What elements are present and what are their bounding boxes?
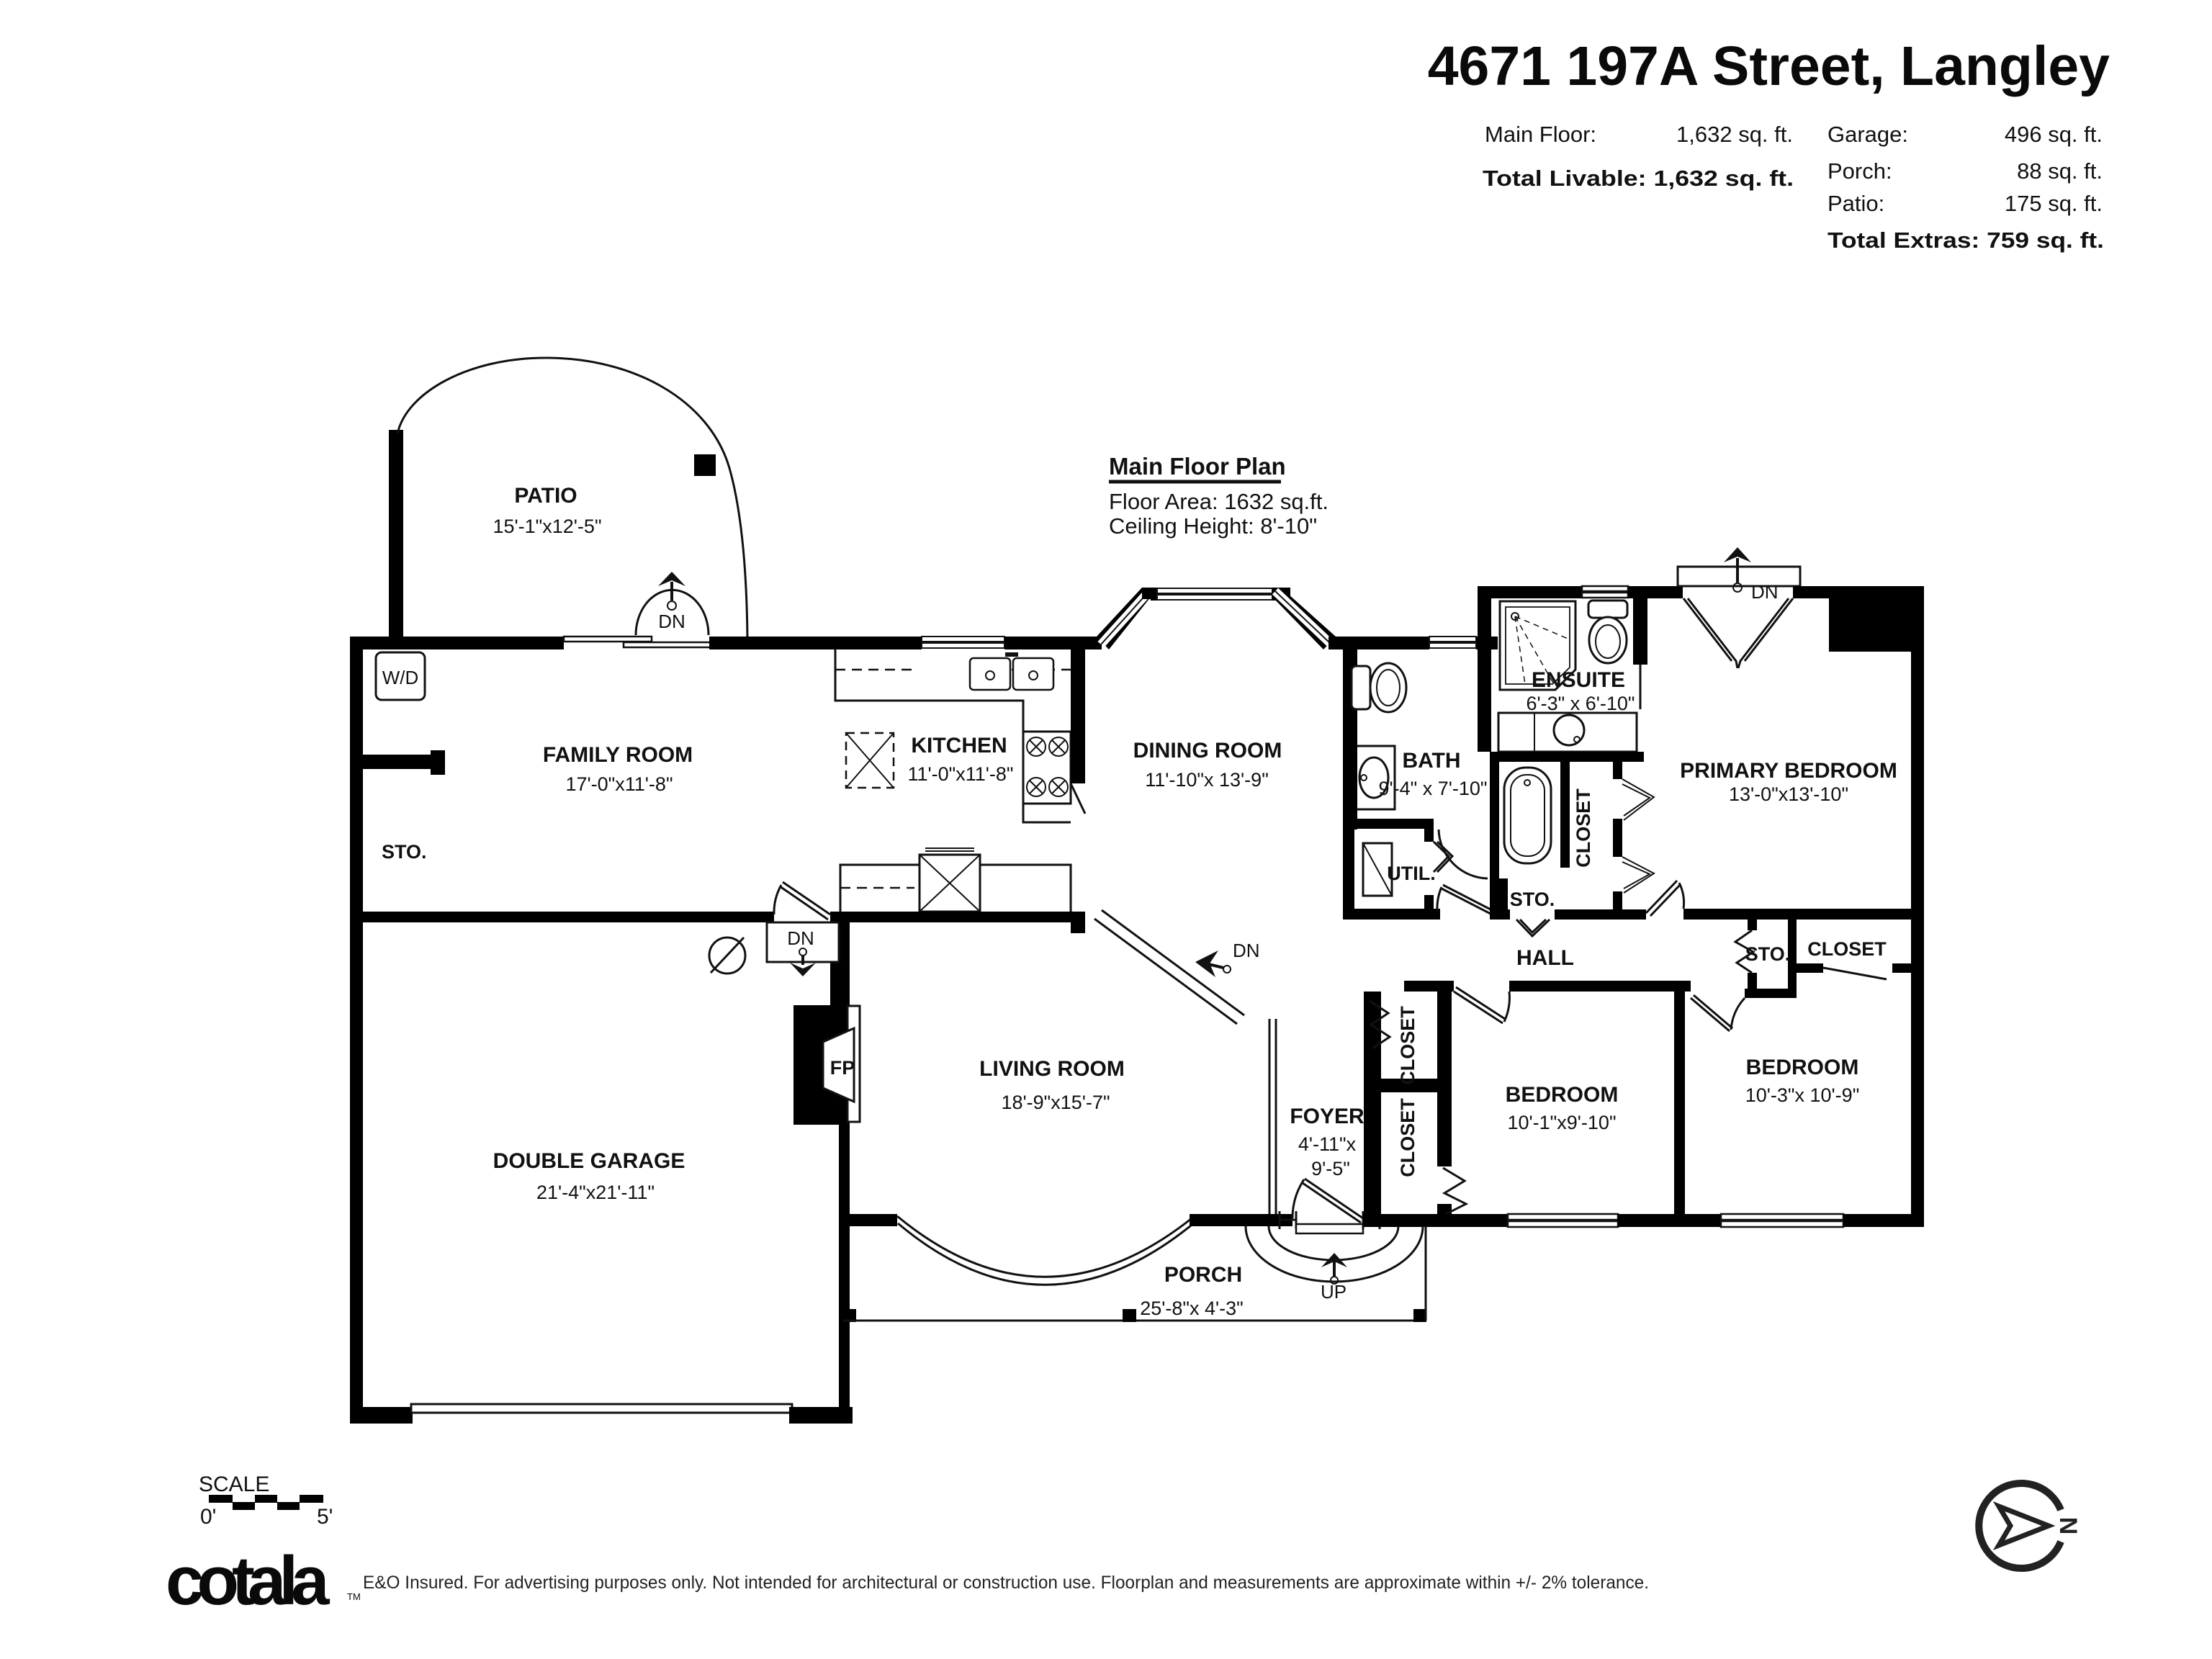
svg-text:5': 5': [317, 1505, 333, 1529]
svg-text:PATIO: PATIO: [514, 484, 577, 508]
svg-text:18'-9"x15'-7": 18'-9"x15'-7": [1001, 1092, 1110, 1113]
svg-text:25'-8"x 4'-3": 25'-8"x 4'-3": [1140, 1298, 1244, 1319]
svg-text:PRIMARY BEDROOM: PRIMARY BEDROOM: [1680, 759, 1897, 783]
svg-text:Ceiling Height: 8'-10": Ceiling Height: 8'-10": [1109, 513, 1317, 539]
svg-text:13'-0"x13'-10": 13'-0"x13'-10": [1729, 783, 1848, 805]
svg-text:Main Floor Plan: Main Floor Plan: [1109, 453, 1286, 480]
svg-text:CLOSET: CLOSET: [1807, 938, 1887, 960]
svg-text:11'-0"x11'-8": 11'-0"x11'-8": [907, 763, 1013, 785]
svg-text:CLOSET: CLOSET: [1397, 1006, 1419, 1085]
svg-text:1,632 sq. ft.: 1,632 sq. ft.: [1676, 122, 1793, 147]
svg-text:STO.: STO.: [1510, 889, 1555, 910]
svg-text:Garage:: Garage:: [1827, 122, 1908, 147]
svg-text:Main Floor:: Main Floor:: [1485, 122, 1596, 147]
svg-text:DN: DN: [1751, 581, 1779, 603]
svg-text:CLOSET: CLOSET: [1397, 1098, 1419, 1177]
svg-text:FP: FP: [830, 1057, 855, 1079]
svg-text:Floor Area: 1632 sq.ft.: Floor Area: 1632 sq.ft.: [1109, 489, 1328, 514]
svg-text:Porch:: Porch:: [1827, 158, 1892, 184]
svg-text:BEDROOM: BEDROOM: [1746, 1056, 1859, 1079]
svg-text:UTIL.: UTIL.: [1387, 863, 1436, 884]
svg-text:4671 197A Street, Langley: 4671 197A Street, Langley: [1428, 35, 2110, 97]
svg-text:Total Extras: 759 sq. ft.: Total Extras: 759 sq. ft.: [1827, 228, 2104, 253]
svg-text:Patio:: Patio:: [1827, 191, 1884, 216]
svg-text:DN: DN: [658, 611, 685, 632]
svg-text:LIVING ROOM: LIVING ROOM: [979, 1057, 1125, 1081]
svg-text:DOUBLE GARAGE: DOUBLE GARAGE: [493, 1149, 685, 1173]
svg-text:DN: DN: [1233, 940, 1260, 961]
svg-text:BATH: BATH: [1402, 749, 1460, 773]
svg-text:cotala: cotala: [166, 1542, 330, 1619]
svg-text:6'-3" x 6'-10": 6'-3" x 6'-10": [1526, 693, 1635, 714]
svg-text:SCALE: SCALE: [199, 1473, 269, 1496]
svg-text:CLOSET: CLOSET: [1573, 788, 1594, 868]
svg-text:DINING ROOM: DINING ROOM: [1133, 739, 1282, 763]
svg-text:STO.: STO.: [1745, 943, 1791, 965]
svg-text:KITCHEN: KITCHEN: [911, 734, 1007, 757]
svg-text:Total Livable: 1,632 sq. ft.: Total Livable: 1,632 sq. ft.: [1483, 166, 1794, 191]
svg-text:15'-1"x12'-5": 15'-1"x12'-5": [493, 516, 601, 537]
svg-text:4'-11"x: 4'-11"x: [1298, 1133, 1357, 1155]
svg-text:ENSUITE: ENSUITE: [1532, 668, 1625, 692]
svg-text:88 sq. ft.: 88 sq. ft.: [2017, 158, 2103, 184]
svg-text:HALL: HALL: [1516, 946, 1574, 970]
svg-text:FOYER: FOYER: [1290, 1105, 1364, 1128]
svg-text:E&O Insured. For advertising p: E&O Insured. For advertising purposes on…: [363, 1573, 1649, 1593]
svg-text:TM: TM: [347, 1591, 361, 1602]
svg-text:DN: DN: [787, 927, 814, 949]
svg-text:21'-4"x21'-11": 21'-4"x21'-11": [536, 1182, 655, 1203]
svg-text:0': 0': [200, 1505, 216, 1529]
svg-text:9'-5": 9'-5": [1311, 1158, 1350, 1179]
svg-text:N: N: [2054, 1517, 2082, 1535]
svg-text:10'-3"x 10'-9": 10'-3"x 10'-9": [1745, 1084, 1860, 1106]
svg-text:FAMILY ROOM: FAMILY ROOM: [543, 743, 693, 767]
svg-text:PORCH: PORCH: [1164, 1263, 1242, 1287]
svg-text:UP: UP: [1321, 1281, 1346, 1303]
svg-text:BEDROOM: BEDROOM: [1506, 1083, 1619, 1107]
svg-text:W/D: W/D: [382, 667, 419, 688]
svg-text:STO.: STO.: [382, 841, 427, 863]
svg-text:496 sq. ft.: 496 sq. ft.: [2005, 122, 2103, 147]
svg-text:17'-0"x11'-8": 17'-0"x11'-8": [565, 773, 673, 795]
svg-text:175 sq. ft.: 175 sq. ft.: [2005, 191, 2103, 216]
svg-text:10'-1"x9'-10": 10'-1"x9'-10": [1507, 1112, 1616, 1133]
svg-text:11'-10"x 13'-9": 11'-10"x 13'-9": [1145, 769, 1269, 791]
